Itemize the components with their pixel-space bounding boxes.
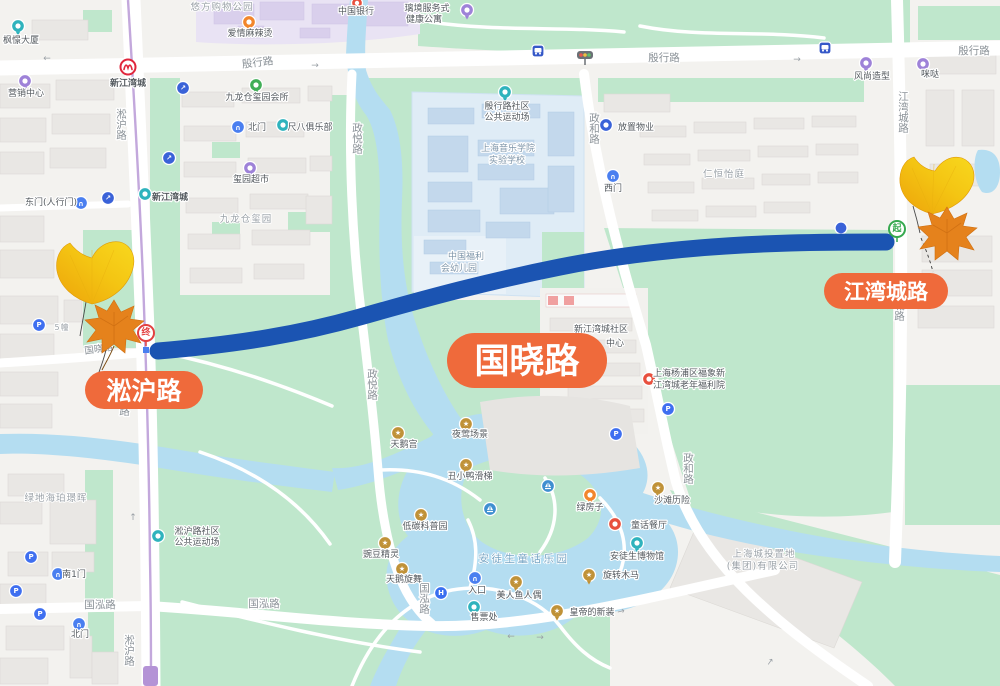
svg-text:★: ★ xyxy=(395,429,401,437)
poi-label: 尺八俱乐部 xyxy=(287,121,332,133)
svg-text:P: P xyxy=(613,430,618,438)
poi-pin-xinjiangwancheng[interactable] xyxy=(139,188,152,201)
poi-pin-fangzhi-property[interactable] xyxy=(600,119,613,132)
svg-text:∩: ∩ xyxy=(78,200,84,208)
metro-station-label: 新江湾城 xyxy=(110,77,146,89)
road-label-songhu-3: 淞沪路 xyxy=(123,634,135,666)
svg-text:★: ★ xyxy=(399,565,405,573)
svg-text:江湾城路: 江湾城路 xyxy=(844,280,929,304)
svg-text:★: ★ xyxy=(554,607,560,615)
road-label-zhenghe-1: 政和路 xyxy=(588,111,600,144)
parking-icon[interactable]: P xyxy=(10,585,23,598)
svg-text:★: ★ xyxy=(418,511,424,519)
arrow-left-icon: ← xyxy=(507,632,515,642)
area-label: 仁恒怡庭 xyxy=(703,168,745,180)
svg-text:∩: ∩ xyxy=(55,571,61,579)
poi-label: 枫憬大厦 xyxy=(3,34,39,46)
area-label: 悠方购物公园 xyxy=(190,1,253,13)
svg-text:国晓路: 国晓路 xyxy=(474,342,580,382)
poi-label: 北门 xyxy=(248,121,266,133)
poi-label: 中国银行 xyxy=(338,5,374,17)
poi-label: 殷行路社区 xyxy=(484,100,529,112)
road-label-guohong-1: 国泓路 xyxy=(84,598,116,611)
parking-icon[interactable]: P xyxy=(33,319,46,332)
poi-label: 风尚造型 xyxy=(854,70,890,82)
svg-text:∩: ∩ xyxy=(610,173,616,181)
svg-text:P: P xyxy=(28,553,33,561)
road-label-guohong-2: 国泓路 xyxy=(248,597,280,610)
poi-label: 江湾城老年福利院 xyxy=(653,379,725,391)
poi-pin-restaurant[interactable] xyxy=(609,518,622,531)
arrow-up-icon: ↑ xyxy=(129,513,137,523)
poi-label: 旋转木马 xyxy=(603,569,639,581)
poi-label: 南1门 xyxy=(62,568,86,580)
poi-label: 低碳科普园 xyxy=(402,520,447,532)
road-label-yinhang-3: 殷行路 xyxy=(958,44,990,57)
svg-text:P: P xyxy=(36,321,41,329)
poi-label: 西门 xyxy=(604,182,622,194)
road-label-zhengyue-1: 政悦路 xyxy=(351,121,363,154)
poi-label: 放置物业 xyxy=(618,121,654,133)
boat-icon[interactable] xyxy=(484,503,497,516)
gate-icon-west[interactable]: ∩ xyxy=(607,170,620,183)
svg-text:↗: ↗ xyxy=(166,154,172,162)
poi-pin-ticket-office[interactable] xyxy=(468,601,481,614)
poi-label: 东门(人行门) xyxy=(25,196,77,208)
svg-text:淞沪路: 淞沪路 xyxy=(106,377,182,406)
poi-label-kindergarten-1: 中国福利 xyxy=(448,250,484,262)
poi-label: 九龙仓玺园会所 xyxy=(225,91,288,103)
area-label: 上海城投置地 xyxy=(732,548,795,560)
metro-entrance-icon[interactable]: ↗ xyxy=(177,82,190,95)
area-label: 5幢 xyxy=(54,322,69,332)
poi-label: 实验学校 xyxy=(489,154,525,166)
hospital-icon[interactable]: H xyxy=(435,587,448,600)
svg-text:H: H xyxy=(438,589,444,597)
road-label-zhenghe-2: 政和路 xyxy=(682,451,694,484)
arrow-right-icon: → xyxy=(536,633,544,643)
svg-text:★: ★ xyxy=(513,578,519,586)
parking-icon[interactable]: P xyxy=(34,608,47,621)
boat-icon[interactable] xyxy=(542,480,555,493)
bus-stop-icon[interactable] xyxy=(819,42,831,54)
route-label-pill-guoxiao: 国晓路 xyxy=(447,333,607,388)
svg-text:★: ★ xyxy=(586,571,592,579)
road-label-jiangwancheng-1: 江湾城路 xyxy=(897,91,909,134)
poi-label: 营销中心 xyxy=(8,87,44,99)
poi-label: 公共运动场 xyxy=(484,112,529,123)
parking-icon[interactable]: P xyxy=(662,403,675,416)
svg-text:终: 终 xyxy=(140,326,151,338)
svg-text:起: 起 xyxy=(891,222,902,234)
road-label-songhu-1: 淞沪路 xyxy=(115,108,127,140)
area-label: 绿地海珀璟晖 xyxy=(24,492,87,504)
poi-label: 安徒生博物馆 xyxy=(610,550,664,562)
arrow-right-icon: → xyxy=(311,61,319,71)
poi-label: 咪哒 xyxy=(921,68,939,80)
poi-label: 淞沪路社区 xyxy=(174,525,219,537)
metro-entrance-icon[interactable]: ↗ xyxy=(163,152,176,165)
parking-icon[interactable]: P xyxy=(610,428,623,441)
metro-entrance-icon[interactable]: ↗ xyxy=(102,192,115,205)
map-screenshot: 殷行路 殷行路 殷行路 淞沪路 淞沪路 淞沪路 江湾城路 江湾城路 政悦路 政悦… xyxy=(0,0,1000,686)
arrow-left-icon: ← xyxy=(43,54,51,64)
svg-text:P: P xyxy=(665,405,670,413)
route-label-pill-jiangwancheng: 江湾城路 xyxy=(824,273,948,309)
poi-label: 上海杨浦区福象新 xyxy=(653,367,725,379)
poi-label: 上海音乐学院 xyxy=(481,142,535,154)
svg-text:↗: ↗ xyxy=(105,194,111,202)
poi-label: 皇帝的新装 xyxy=(569,606,614,618)
gate-icon-park-entrance[interactable]: ∩ xyxy=(469,572,482,585)
poi-label: 夜莺场景 xyxy=(452,428,488,440)
arrow-right-icon: → xyxy=(793,55,801,65)
poi-label: 丑小鸭滑梯 xyxy=(447,470,492,482)
svg-text:★: ★ xyxy=(463,461,469,469)
poi-label: 健康公寓 xyxy=(406,13,442,25)
metro-station-marker[interactable] xyxy=(143,666,158,686)
svg-text:∩: ∩ xyxy=(76,621,82,629)
shanghai-metro-logo[interactable] xyxy=(121,60,136,75)
parking-icon[interactable]: P xyxy=(25,551,38,564)
poi-label: 北门 xyxy=(71,628,89,640)
route-label-pill-songhu: 淞沪路 xyxy=(85,371,203,409)
bus-stop-icon[interactable] xyxy=(532,45,544,57)
bus-stop-pin[interactable] xyxy=(835,222,847,234)
poi-label: 绿房子 xyxy=(576,501,603,513)
road-label-guohong-3: 国泓路 xyxy=(418,582,430,614)
poi-label: 沙滩历险 xyxy=(654,494,690,506)
poi-label: 爱情麻辣烫 xyxy=(227,27,272,39)
poi-label-community-center-2: 中心 xyxy=(606,337,624,349)
svg-text:★: ★ xyxy=(655,484,661,492)
poi-pin-songhu-sports-ground[interactable] xyxy=(152,530,165,543)
poi-label: 天鹅宫 xyxy=(390,438,417,450)
poi-label: 公共运动场 xyxy=(174,537,219,548)
poi-label: 璃境服务式 xyxy=(404,2,449,14)
poi-label: 童话餐厅 xyxy=(631,519,667,531)
poi-label-kindergarten-2: 会幼儿园 xyxy=(441,262,477,274)
poi-label: 入口 xyxy=(468,585,486,596)
map-canvas: 殷行路 殷行路 殷行路 淞沪路 淞沪路 淞沪路 江湾城路 江湾城路 政悦路 政悦… xyxy=(0,0,1000,686)
poi-label: 售票处 xyxy=(470,611,497,623)
poi-label: 美人鱼人偶 xyxy=(496,589,541,601)
area-label: (集团)有限公司 xyxy=(727,560,799,572)
park-name-label: 安徒生童话乐园 xyxy=(479,552,570,565)
area-label: 九龙仓玺园 xyxy=(220,213,273,225)
road-label-yinhang-2: 殷行路 xyxy=(648,51,680,64)
svg-text:P: P xyxy=(13,587,18,595)
svg-text:★: ★ xyxy=(382,539,388,547)
svg-text:P: P xyxy=(37,610,42,618)
gate-icon-north-top[interactable]: ∩ xyxy=(232,121,245,134)
svg-text:∩: ∩ xyxy=(235,124,241,132)
svg-text:↗: ↗ xyxy=(180,84,186,92)
gate-icon-north-bottom[interactable]: ∩ xyxy=(73,618,86,631)
svg-text:★: ★ xyxy=(463,420,469,428)
svg-text:∩: ∩ xyxy=(472,575,478,583)
poi-label: 天鹅旋舞 xyxy=(386,573,422,585)
poi-label: 玺园超市 xyxy=(233,173,269,185)
poi-label: 豌豆精灵 xyxy=(363,548,399,560)
road-label-zhengyue-2: 政悦路 xyxy=(366,367,378,400)
poi-label: 新江湾城 xyxy=(152,191,188,203)
